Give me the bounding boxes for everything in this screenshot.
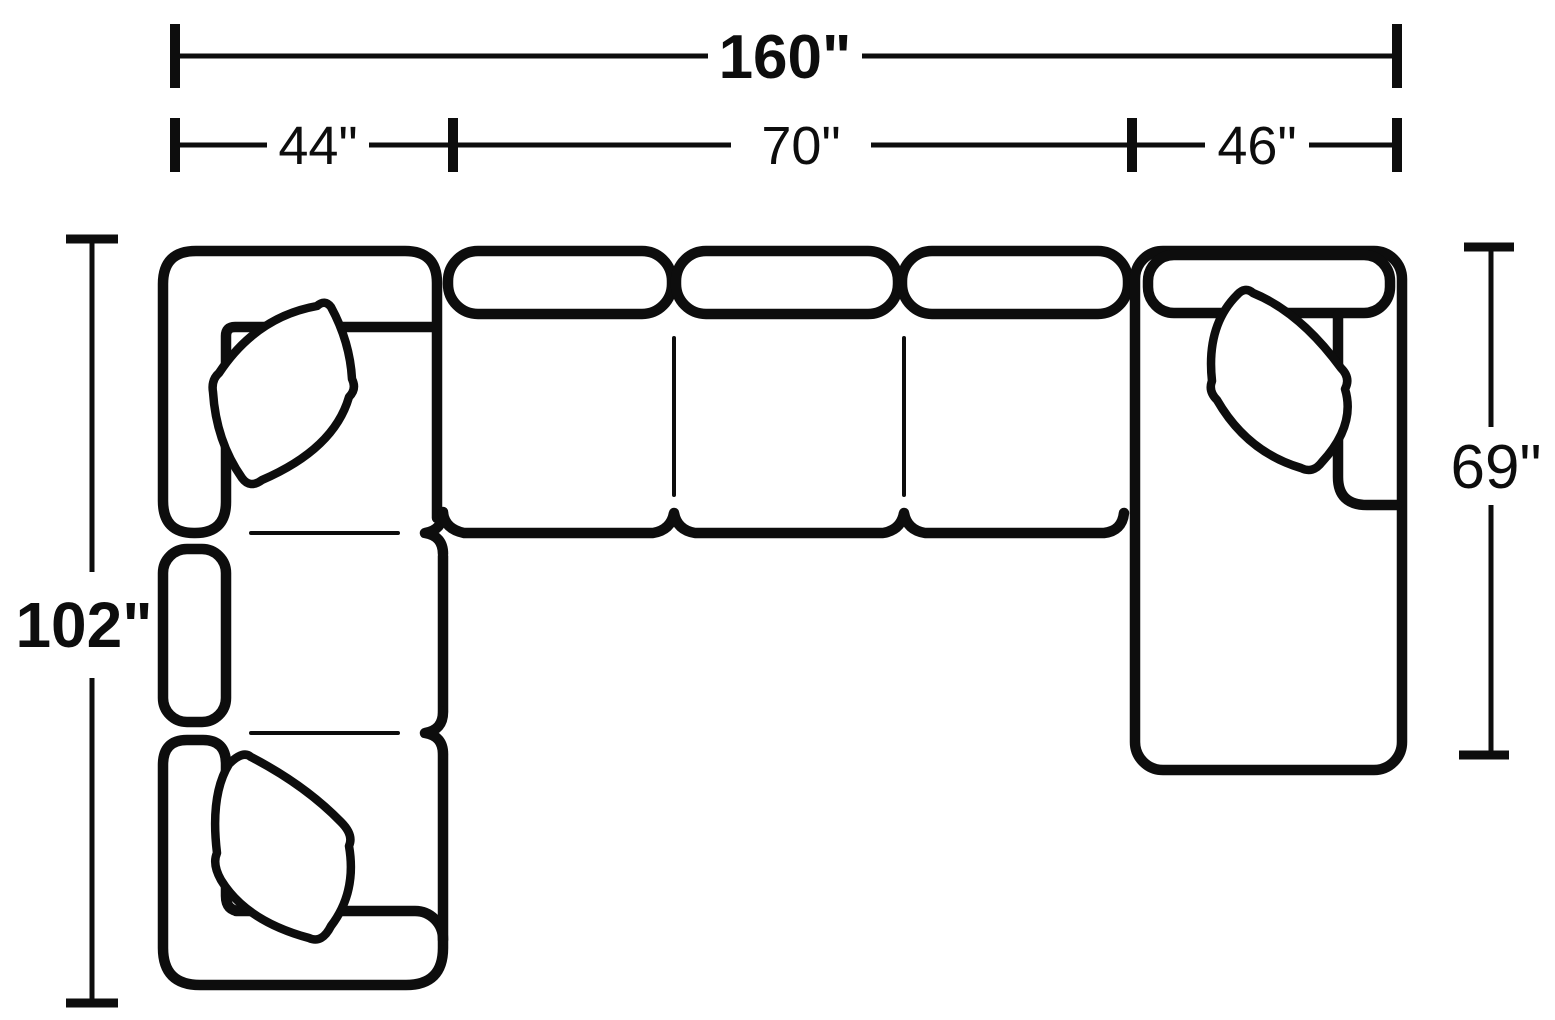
sofa-dimension-diagram: 160" 44" 70" 46" 102" 69" (0, 0, 1555, 1020)
dimension-left-depth: 102" (15, 239, 152, 1003)
back-cushion-1 (448, 251, 672, 314)
dimension-label-left-depth: 102" (15, 589, 152, 661)
dimension-total-width: 160" (175, 23, 1397, 92)
left-back-cushion-middle (163, 549, 226, 722)
dimension-section-widths: 44" 70" 46" (175, 116, 1397, 176)
dimension-label-chaise-depth: 69" (1451, 433, 1542, 502)
dimension-label-middle-width: 70" (761, 116, 840, 176)
dimension-label-chaise-width: 46" (1217, 116, 1296, 176)
left-wing-seam-joint-lower (425, 712, 443, 754)
back-cushion-3 (902, 251, 1128, 314)
dimension-label-corner-width: 44" (278, 116, 357, 176)
seat-front-edge (443, 513, 1124, 533)
dimension-label-total-width: 160" (719, 23, 852, 92)
back-cushion-2 (676, 251, 898, 314)
dimension-chaise-depth: 69" (1451, 247, 1542, 755)
sofa-diagram-canvas: 160" 44" 70" 46" 102" 69" (0, 0, 1555, 1020)
